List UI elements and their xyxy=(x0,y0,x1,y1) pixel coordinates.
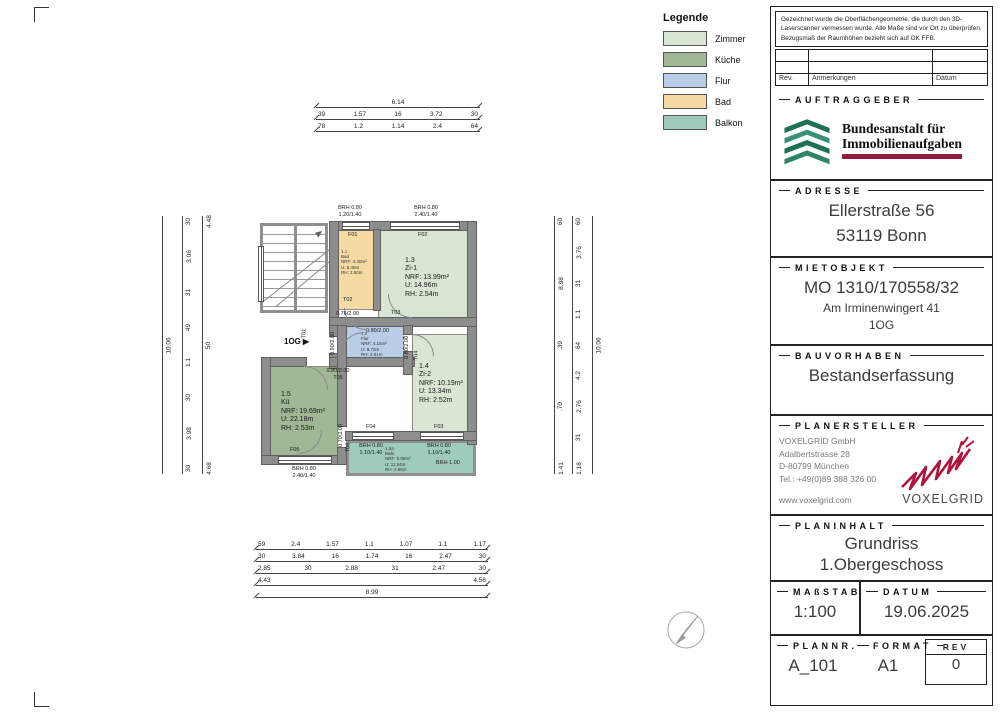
label-size-t03: 0.80/2.00 xyxy=(366,328,389,335)
room-zi1-text: 1.3 Zi-1 NRF: 13.99m² U: 14.96m RH: 2.54… xyxy=(405,257,467,299)
dim-label: 16 xyxy=(405,553,412,560)
dim-label: 2.4 xyxy=(291,541,300,548)
label-size-t04: 0.80/2.00 xyxy=(404,336,411,359)
format-value: A1 xyxy=(857,653,919,679)
dim-row: 4.434.56 xyxy=(256,576,488,584)
wall xyxy=(468,222,476,444)
dim-label: 64 xyxy=(471,123,478,130)
label-f04: F04 xyxy=(366,424,375,431)
dim-label: 30 xyxy=(471,111,478,118)
room-bad-text: 1.1 Bad NRF: 4.30m² U: 8.40m RH: 2.50m xyxy=(341,249,372,275)
label-t02: T02 xyxy=(343,297,352,304)
dimension-chain-right-outer: 10.06 xyxy=(592,216,605,474)
title-block: Gezeichnet wurde die Oberflächengeometri… xyxy=(770,6,993,706)
plannr-value: A_101 xyxy=(777,653,849,679)
voxelgrid-deer-icon xyxy=(896,435,984,493)
label-brh-f05: BRH 0.80 2.40/1.40 xyxy=(276,466,332,480)
adresse-section: ADRESSE Ellerstraße 56 53119 Bonn xyxy=(771,179,992,256)
room-zi2-text: 1.4 Zi-2 NRF: 10.19m² U: 13.34m RH: 2.52… xyxy=(419,363,467,405)
dim-label: .70 xyxy=(557,402,564,411)
dim-label: 31 xyxy=(185,288,192,295)
planersteller-tel: Tel.: +49(0)89 388 326 00 xyxy=(779,473,876,486)
format-heading: FORMAT xyxy=(857,641,919,651)
dim-line xyxy=(256,597,488,598)
dim-label: 1.14 xyxy=(392,123,405,130)
mietobjekt-heading: MIETOBJEKT xyxy=(779,263,984,273)
dimension-chain-left-outer: 10.06 xyxy=(162,216,175,474)
label-t05: 0.80/2.00T05 xyxy=(316,368,360,382)
dim-row: 303.84161.74162.4730 xyxy=(256,552,488,560)
planinhalt-heading: PLANINHALT xyxy=(779,521,984,531)
label-f05: F05 xyxy=(290,447,299,454)
dim-label: 3.98 xyxy=(186,427,193,440)
floor-tag-label: 1OG xyxy=(284,337,301,346)
planersteller-web: www.voxelgrid.com xyxy=(779,494,876,507)
dimension-chain-right-2: 603.76311.1644.22.76311.18 xyxy=(572,216,585,474)
window-f04 xyxy=(352,432,394,440)
datum-value: 19.06.2025 xyxy=(867,599,986,625)
rev-cell xyxy=(933,50,987,61)
label-t04: T04 xyxy=(413,351,420,360)
anmerkungen-col-header: Anmerkungen xyxy=(809,73,933,85)
bauvorhaben-heading: BAUVORHABEN xyxy=(779,351,984,361)
massstab-heading: MAßSTAB xyxy=(777,587,853,597)
dim-label: 64 xyxy=(575,341,582,348)
dim-label: 4.56 xyxy=(473,577,486,584)
dim-label: 31 xyxy=(575,434,582,441)
window-f03 xyxy=(420,432,464,440)
rev-value: 0 xyxy=(926,655,986,673)
dim-label: 4.43 xyxy=(258,577,271,584)
dim-label: 16 xyxy=(394,111,401,118)
dim-total-bottom: 8.99 xyxy=(366,589,379,596)
dim-label: 30 xyxy=(185,394,192,401)
dim-label: 1.1 xyxy=(185,358,192,367)
label-f03: F03 xyxy=(434,424,443,431)
mietobjekt-street: Am Irminenwingert 41 xyxy=(779,300,984,316)
dim-label: 1.41 xyxy=(558,462,565,475)
voxelgrid-logo-text: VOXELGRID xyxy=(896,492,984,506)
rev-heading: REV xyxy=(926,640,986,655)
label-t05-tag: T05 xyxy=(333,375,342,381)
dim-label: 1.1 xyxy=(365,541,374,548)
dim-line xyxy=(316,119,480,120)
planinhalt-line2: 1.Obergeschoss xyxy=(779,554,984,575)
bima-logo-icon xyxy=(781,115,833,165)
wall xyxy=(374,230,380,310)
dim-line xyxy=(256,585,488,586)
bauvorhaben-value: Bestandserfassung xyxy=(779,363,984,389)
label-brh-f01: BRH 0.80 1.20/1.40 xyxy=(328,205,372,219)
dim-label: 4.48 xyxy=(206,215,213,228)
label-brh-f04: BRH 0.80 1.10/1.40 xyxy=(348,443,394,457)
label-size-t05: 0.80/2.00 xyxy=(327,368,350,374)
planersteller-street: Adalbertstrasse 28 xyxy=(779,448,876,461)
stair-divider xyxy=(294,226,297,310)
label-brh-f03: BRH 0.80 1.10/1.40 xyxy=(416,443,462,457)
datum-col-header: Datum xyxy=(933,73,987,85)
dim-line xyxy=(256,549,488,550)
dim-label: 4.2 xyxy=(575,371,582,380)
dim-label: 49 xyxy=(185,324,192,331)
dim-label: 2.47 xyxy=(439,553,452,560)
dimension-chain-left-2: 4.48504.68 xyxy=(202,216,215,474)
dim-label: 3.84 xyxy=(292,553,305,560)
dim-label: 1.17 xyxy=(473,541,486,548)
stair-window xyxy=(258,246,264,302)
dim-label: 2.85 xyxy=(258,565,271,572)
label-f01: F01 xyxy=(348,232,357,239)
dim-label: 1.57 xyxy=(326,541,339,548)
dim-label: 3.06 xyxy=(186,250,193,263)
dimension-chain-left-1: 303.0631491.1303.9830 xyxy=(182,216,195,474)
dim-label: 31 xyxy=(575,280,582,287)
bima-logo: Bundesanstalt für Immobilienaufgaben xyxy=(779,107,984,169)
bima-logo-bar xyxy=(842,154,962,159)
wall xyxy=(404,326,412,334)
dim-label: 1.1 xyxy=(438,541,447,548)
dim-row: 2.85302.88312.4730 xyxy=(256,564,488,572)
dim-row: 592.41.571.11.071.11.17 xyxy=(256,540,488,548)
label-f02: F02 xyxy=(418,232,427,239)
bima-logo-text-1: Bundesanstalt für xyxy=(842,121,962,136)
planersteller-section: PLANERSTELLER VOXELGRID GmbH Adalbertstr… xyxy=(771,414,992,514)
dim-label: 1.18 xyxy=(576,462,583,475)
dim-label: 3.72 xyxy=(430,111,443,118)
label-t01: T01 xyxy=(301,329,308,338)
rev-cell xyxy=(809,50,933,61)
dimension-chain-right-1: 608.98.39.701.41 xyxy=(554,216,567,474)
floor-tag: 1OG ▶ xyxy=(284,337,309,346)
mietobjekt-id: MO 1310/170558/32 xyxy=(779,275,984,301)
dim-label: 2.88 xyxy=(345,565,358,572)
floor-plan: 6.14 391.57163.7230 781.21.142.464 10.06… xyxy=(0,0,770,713)
room-flur-text: 1.2 Flur NRF: 4.15m² U: 8.70m RH: 2.51m xyxy=(361,331,403,357)
dim-label: 30 xyxy=(304,565,311,572)
dim-label: 30 xyxy=(479,553,486,560)
dim-row: 781.21.142.464 xyxy=(316,122,480,130)
dim-label: 50 xyxy=(205,341,212,348)
rev-cell xyxy=(809,61,933,73)
revision-table: Rev. Anmerkungen Datum xyxy=(775,49,988,86)
dim-line xyxy=(316,107,480,108)
plan-sheet: { "legend": { "title": "Legende", "items… xyxy=(0,0,1000,713)
rev-col-header: Rev. xyxy=(776,73,809,85)
dim-label: 60 xyxy=(557,218,564,225)
dim-label: 31 xyxy=(392,565,399,572)
dim-label: 1.1 xyxy=(575,310,582,319)
label-t03: T03 xyxy=(391,310,400,317)
label-size-t06: 0.70/2.00 xyxy=(338,424,345,447)
dim-line xyxy=(256,573,488,574)
label-brh-f02: BRH 0.80 2.40/1.40 xyxy=(398,205,454,219)
dim-line xyxy=(316,131,480,132)
plannr-heading: PLANNR. xyxy=(777,641,849,651)
massstab-datum-section: MAßSTAB 1:100 DATUM 19.06.2025 xyxy=(771,580,992,634)
dim-label: 30 xyxy=(185,218,192,225)
datum-heading: DATUM xyxy=(867,587,986,597)
north-arrow-icon xyxy=(664,608,708,652)
mietobjekt-floor: 1OG xyxy=(779,317,984,333)
label-size-entry: 0.90/2.00 xyxy=(330,332,337,355)
dim-label: 8.98 xyxy=(558,277,565,290)
window-f01 xyxy=(342,222,370,230)
rev-cell xyxy=(933,61,987,73)
adresse-heading: ADRESSE xyxy=(779,186,984,196)
plannr-format-rev-section: PLANNR. A_101 FORMAT A1 REV 0 xyxy=(771,634,992,705)
massstab-value: 1:100 xyxy=(777,599,853,625)
drawing-note: Gezeichnet wurde die Oberflächengeometri… xyxy=(775,11,988,47)
dim-label: 2.47 xyxy=(432,565,445,572)
dim-label: 2.4 xyxy=(433,123,442,130)
dim-line xyxy=(256,561,488,562)
dim-label: 60 xyxy=(575,218,582,225)
label-brh-balkon: BRH 1.00 xyxy=(436,460,460,467)
dim-total-right: 10.06 xyxy=(596,337,603,353)
dim-label: 2.76 xyxy=(576,400,583,413)
dimension-chain-top: 6.14 391.57163.7230 781.21.142.464 xyxy=(316,98,480,134)
bima-logo-text-2: Immobilienaufgaben xyxy=(842,136,962,151)
dim-label: 1.07 xyxy=(400,541,413,548)
dim-label: 1.57 xyxy=(353,111,366,118)
dim-label: 30 xyxy=(185,465,192,472)
entrance-arrow-icon: ▶ xyxy=(303,337,309,346)
dim-label: 30 xyxy=(479,565,486,572)
planersteller-heading: PLANERSTELLER xyxy=(779,421,984,431)
planersteller-city: D-80799 München xyxy=(779,460,876,473)
mietobjekt-section: MIETOBJEKT MO 1310/170558/32 Am Irminenw… xyxy=(771,256,992,344)
adresse-line1: Ellerstraße 56 xyxy=(779,198,984,224)
dim-row: 391.57163.7230 xyxy=(316,110,480,118)
auftraggeber-section: AUFTRAGGEBER Bundesanstalt für Immobilie… xyxy=(771,90,992,179)
rev-box: REV 0 xyxy=(925,639,987,685)
rev-cell xyxy=(776,50,809,61)
wall xyxy=(262,358,270,464)
adresse-line2: 53119 Bonn xyxy=(779,223,984,249)
rev-cell xyxy=(776,61,809,73)
room-kueche-text: 1.5 Kü NRF: 19.69m² U: 22.18m RH: 2.53m xyxy=(281,391,337,433)
dim-total-left: 10.06 xyxy=(166,337,173,353)
note-section: Gezeichnet wurde die Oberflächengeometri… xyxy=(771,7,992,90)
window-f05 xyxy=(278,456,332,464)
planersteller-company: VOXELGRID GmbH xyxy=(779,435,876,448)
window-f02 xyxy=(390,222,460,230)
dim-label: .39 xyxy=(557,340,564,349)
dim-label: 1.74 xyxy=(366,553,379,560)
bauvorhaben-section: BAUVORHABEN Bestandserfassung xyxy=(771,344,992,414)
label-size-t02: 0.76/2.00 xyxy=(336,311,359,318)
planinhalt-line1: Grundriss xyxy=(779,533,984,554)
dim-label: 1.2 xyxy=(354,123,363,130)
planinhalt-section: PLANINHALT Grundriss 1.Obergeschoss xyxy=(771,514,992,580)
dim-label: 3.76 xyxy=(576,246,583,259)
dim-label: 16 xyxy=(332,553,339,560)
dimension-chain-bottom: 592.41.571.11.071.11.17 303.84161.74162.… xyxy=(256,540,488,600)
dim-label: 4.68 xyxy=(206,462,213,475)
dim-total-top: 6.14 xyxy=(392,99,405,106)
auftraggeber-heading: AUFTRAGGEBER xyxy=(779,95,984,105)
